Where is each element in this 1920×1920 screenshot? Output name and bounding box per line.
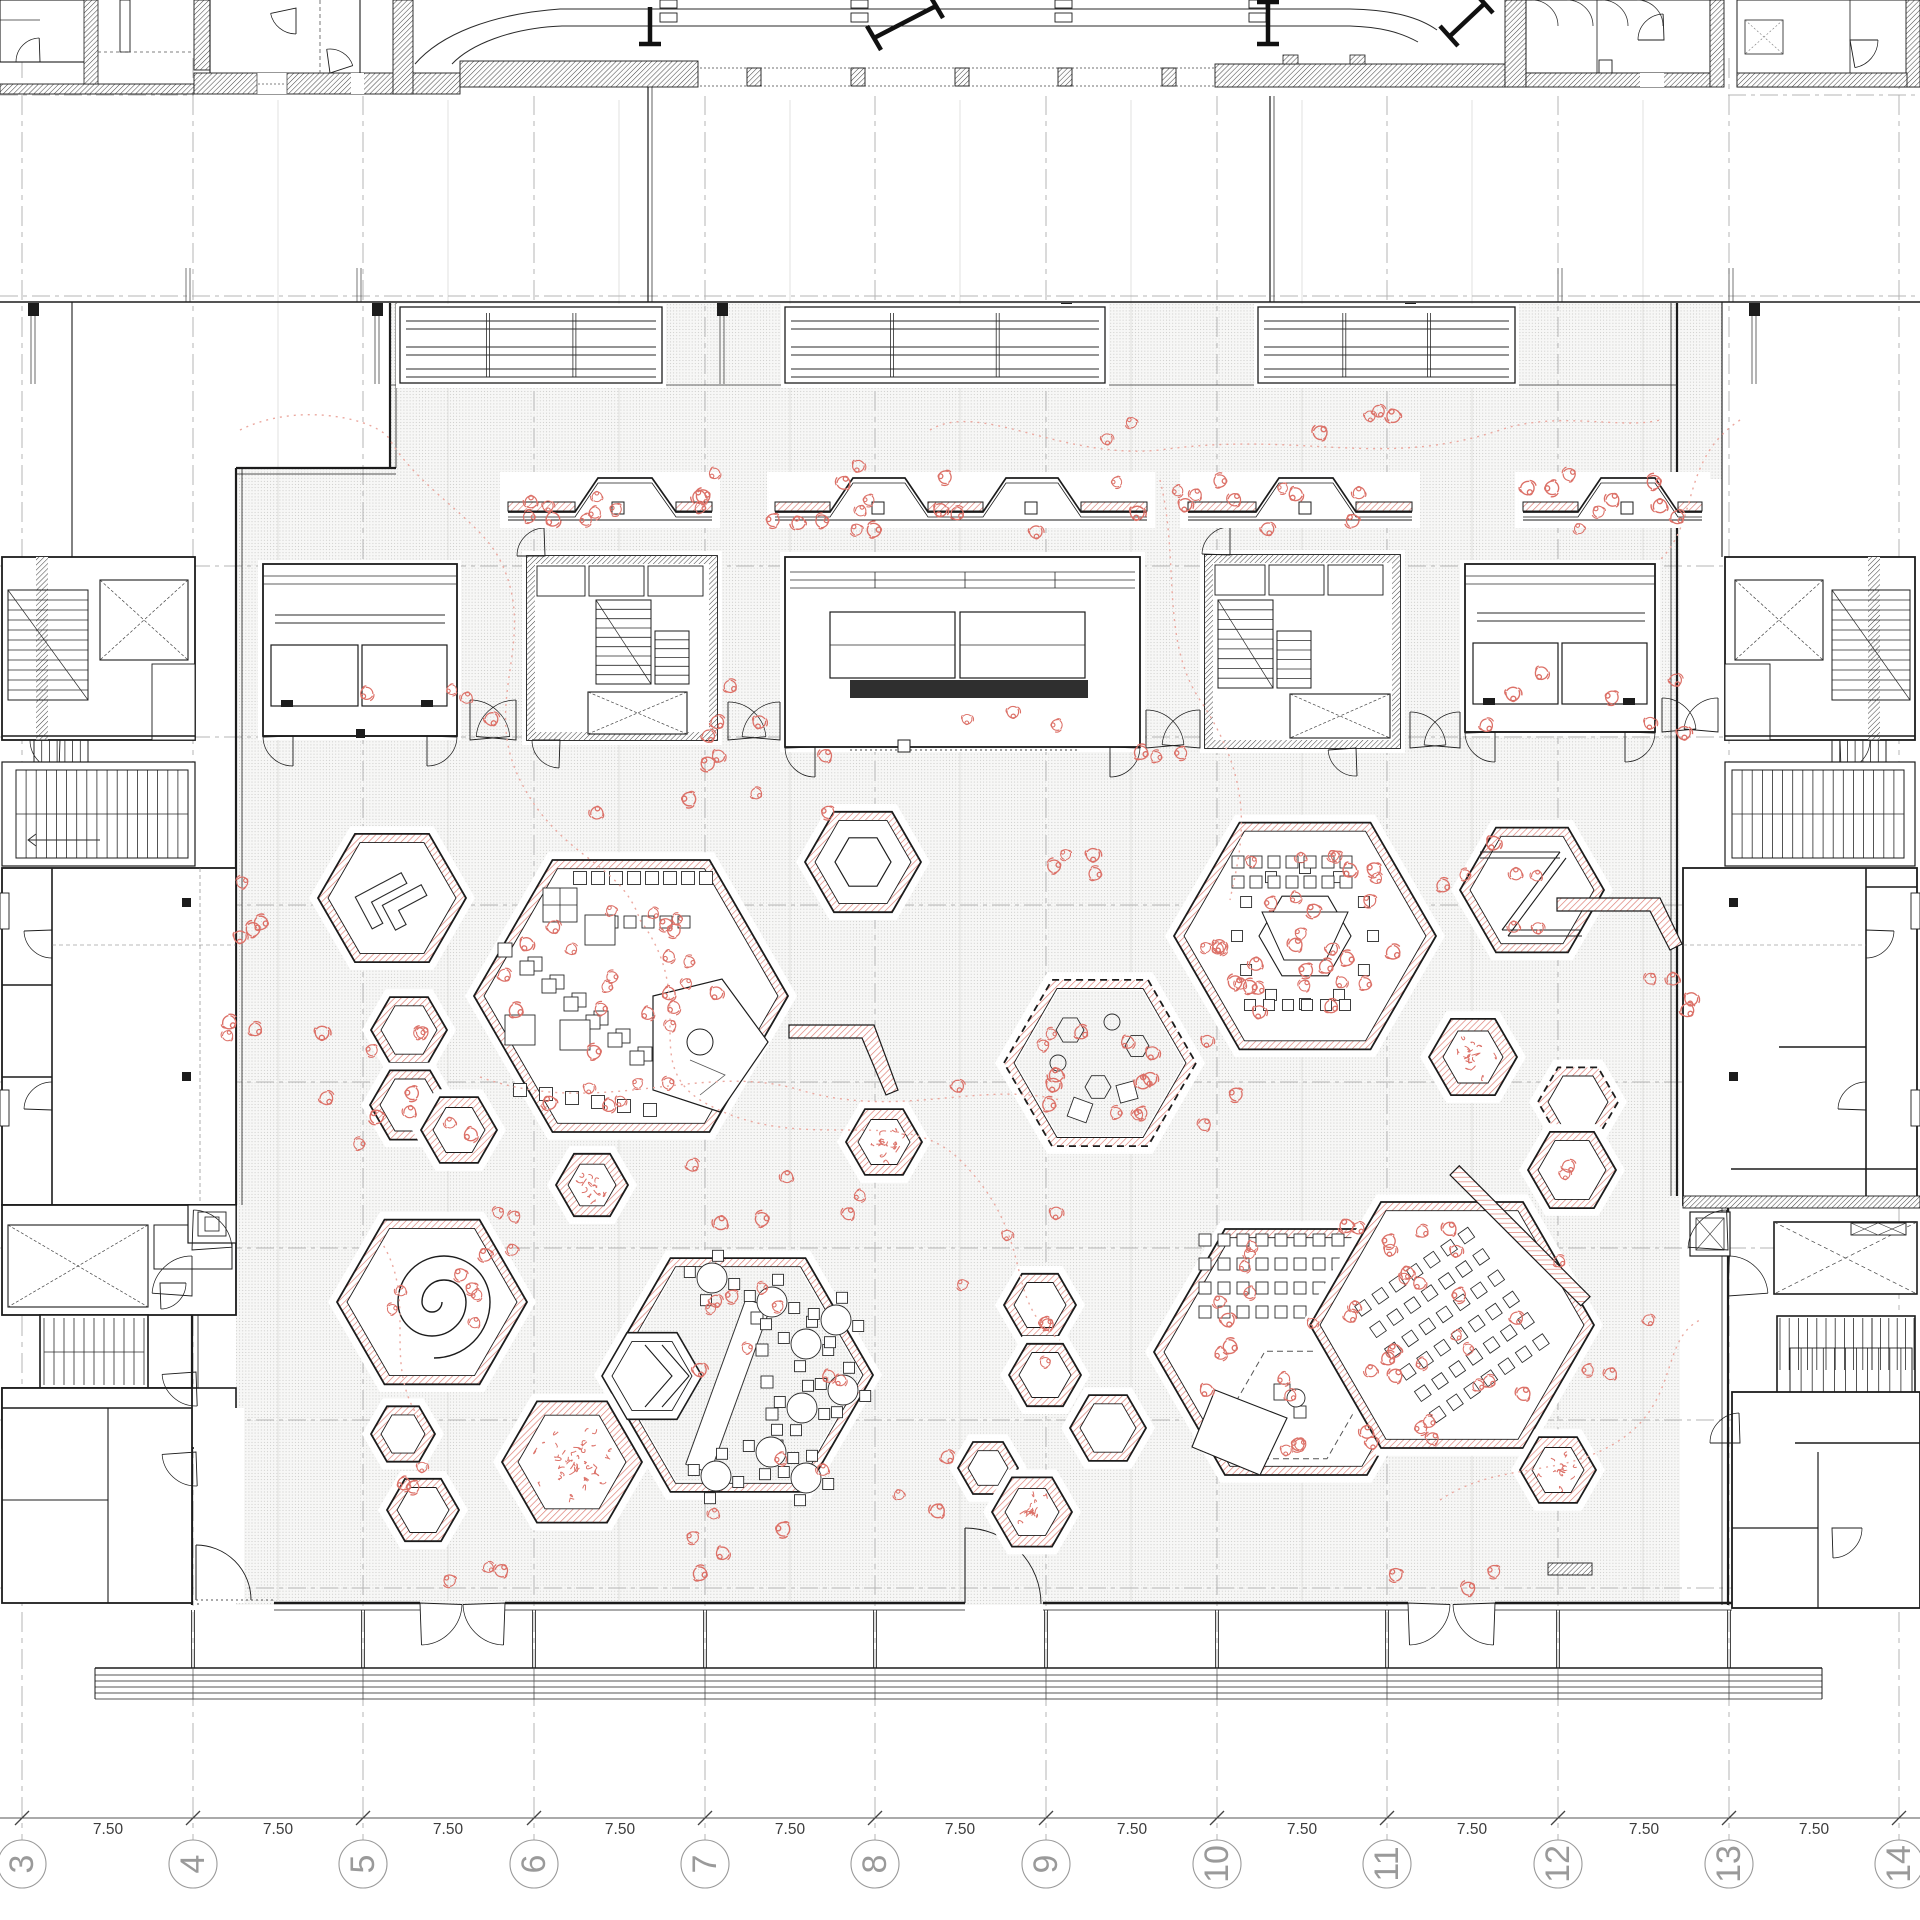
svg-text:7.50: 7.50 [1457,1821,1488,1838]
svg-text:13: 13 [1710,1845,1748,1883]
svg-text:7: 7 [686,1855,724,1874]
svg-text:11: 11 [1368,1846,1406,1881]
svg-text:7.50: 7.50 [433,1821,464,1838]
svg-text:7.50: 7.50 [1629,1821,1660,1838]
svg-text:8: 8 [856,1855,894,1874]
svg-text:7.50: 7.50 [605,1821,636,1838]
svg-text:9: 9 [1027,1855,1065,1874]
svg-text:7.50: 7.50 [775,1821,806,1838]
svg-text:10: 10 [1198,1845,1236,1883]
svg-text:4: 4 [174,1855,212,1874]
svg-text:7.50: 7.50 [945,1821,976,1838]
svg-text:7.50: 7.50 [1117,1821,1148,1838]
svg-text:7.50: 7.50 [93,1821,124,1838]
svg-text:3: 3 [3,1855,41,1874]
svg-text:7.50: 7.50 [1799,1821,1830,1838]
svg-text:14: 14 [1880,1845,1918,1883]
svg-text:5: 5 [344,1855,382,1874]
svg-text:7.50: 7.50 [1287,1821,1318,1838]
svg-text:12: 12 [1539,1845,1577,1883]
svg-text:6: 6 [515,1855,553,1874]
svg-text:7.50: 7.50 [263,1821,294,1838]
